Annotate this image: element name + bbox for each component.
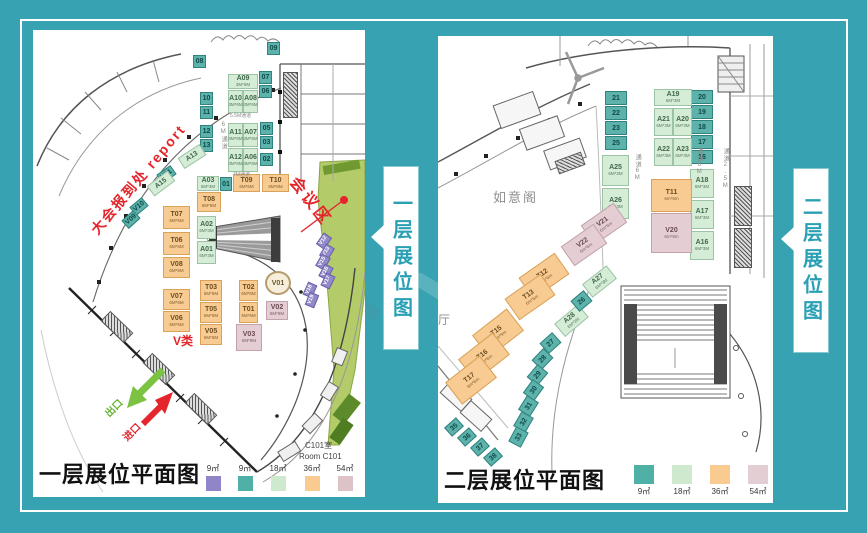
legend-item-36: 36㎡ [703,465,737,497]
booth-size-label: 6M*3M [695,216,709,221]
booth-label: 36 [462,432,472,442]
aisle-center-label: 通道6M [696,148,702,214]
booth-A28: A286M*3M [554,304,589,337]
booth-label: 30 [528,385,538,395]
floor1-panel: 090807061011121305030201A093M*6MA103M*6M… [33,30,365,497]
booth-label: A25 [609,164,622,171]
booth-label: 37 [475,442,485,452]
v-class-label: V类 [173,335,193,348]
booth-21: 21 [605,91,627,105]
aisle-7-label: 7M通道 [233,173,250,178]
legend-item-54: 54㎡ [328,463,362,491]
booth-22: 22 [605,106,627,120]
booth-label: 25 [612,140,620,147]
floor2-booths: 212223252019181716A256M*3MA266M*3MA196M*… [438,36,773,503]
booth-17: 17 [691,135,713,149]
booth-label: 21 [612,95,620,102]
booth-A20: A206M*3M [673,108,692,136]
booth-V20: V206m*9m [651,213,692,253]
legend-item-9-purple: 9㎡ [196,463,230,491]
booth-size-label: 6M*3M [608,172,622,177]
booth-label: 35 [449,422,459,432]
booth-A21: A216M*3M [654,108,673,136]
booth-label: 32 [519,417,529,427]
booth-label: A19 [667,91,680,98]
floor2-title: 二层展位平面图 [444,463,605,495]
booth-label: A22 [657,146,670,153]
booth-label: 22 [612,110,620,117]
booth-size-label: 6m*6m [664,197,678,202]
floor1-banner-text: 一层展位图 [387,193,416,323]
booth-size-label: 6M*3M [675,154,689,159]
booth-map-poster: { "background": {"color": "#37a2b1"}, "b… [0,0,867,533]
floor2-panel: 212223252019181716A256M*3MA266M*3MA196M*… [438,36,773,503]
aisle-left-label: 通道6M [634,154,640,220]
booth-A19: A196M*3M [654,89,692,106]
booth-A23: A236M*3M [673,138,692,166]
booth-23: 23 [605,121,627,135]
legend-item-54: 54㎡ [741,465,773,497]
booth-label: 38 [488,452,498,462]
booth-25: 25 [605,136,627,150]
booth-size-label: 6M*3M [656,124,670,129]
aisle-55-label: 5.5M通道 [230,114,251,119]
booth-size-label: 6M*3M [656,154,670,159]
booth-A25: A256M*3M [602,155,629,186]
banner-arrow [371,225,384,249]
booth-label: A16 [696,239,709,246]
booth-label: V20 [665,227,677,234]
legend-item-18: 18㎡ [665,465,699,497]
hall-label: 厅 [438,314,450,327]
booth-size-label: 6M*3M [695,247,709,252]
floor1-title: 一层展位平面图 [39,457,200,489]
floor2-banner-text: 二层展位图 [797,196,826,326]
booth-size-label: 6M*3M [675,124,689,129]
booth-size-label: 6M*3M [666,99,680,104]
booth-18: 18 [691,120,713,134]
booth-label: 17 [698,139,706,146]
legend-item-18: 18㎡ [261,463,295,491]
ruyi-pavilion-label: 如意阁 [493,191,538,205]
floor1-arrows [33,30,365,497]
booth-label: A21 [657,116,670,123]
booth-label: A20 [676,116,689,123]
booth-T11: T116m*6m [651,179,692,212]
booth-label: 28 [537,354,547,364]
booth-label: 27 [545,338,555,348]
legend-item-36: 36㎡ [295,463,329,491]
booth-label: 20 [698,94,706,101]
room-c101-cn: C101室 [305,442,332,450]
booth-A16: A166M*3M [690,231,714,260]
banner-arrow [781,227,794,251]
booth-label: 33 [514,432,524,442]
booth-20: 20 [691,90,713,104]
booth-A22: A226M*3M [654,138,673,166]
booth-19: 19 [691,105,713,119]
booth-label: 29 [532,370,542,380]
aisle-right-label: 通道2.5M [722,148,728,220]
aisle-6-label: 6M通道 [220,122,226,152]
booth-label: 31 [523,401,533,411]
booth-label: A23 [676,146,689,153]
legend-item-9: 9㎡ [627,465,661,497]
room-c101-en: Room C101 [299,453,342,461]
booth-label: 23 [612,125,620,132]
booth-A27: A276M*3M [582,265,617,297]
booth-label: 26 [576,296,586,306]
booth-size-label: 6m*9m [664,235,678,240]
booth-label: T11 [666,189,678,196]
floor2-banner: 二层展位图 [794,169,828,352]
floor1-banner: 一层展位图 [384,167,418,349]
booth-label: 19 [698,109,706,116]
legend-item-9-teal: 9㎡ [228,463,262,491]
booth-label: 18 [698,124,706,131]
